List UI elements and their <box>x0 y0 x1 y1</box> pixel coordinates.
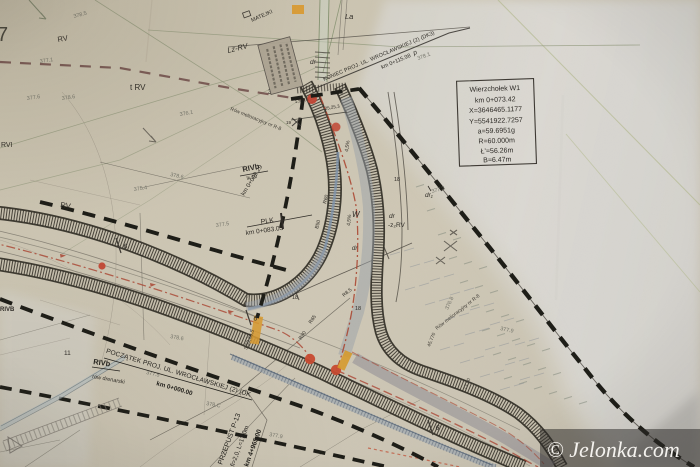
svg-text:© Jelonka.com: © Jelonka.com <box>547 437 680 462</box>
